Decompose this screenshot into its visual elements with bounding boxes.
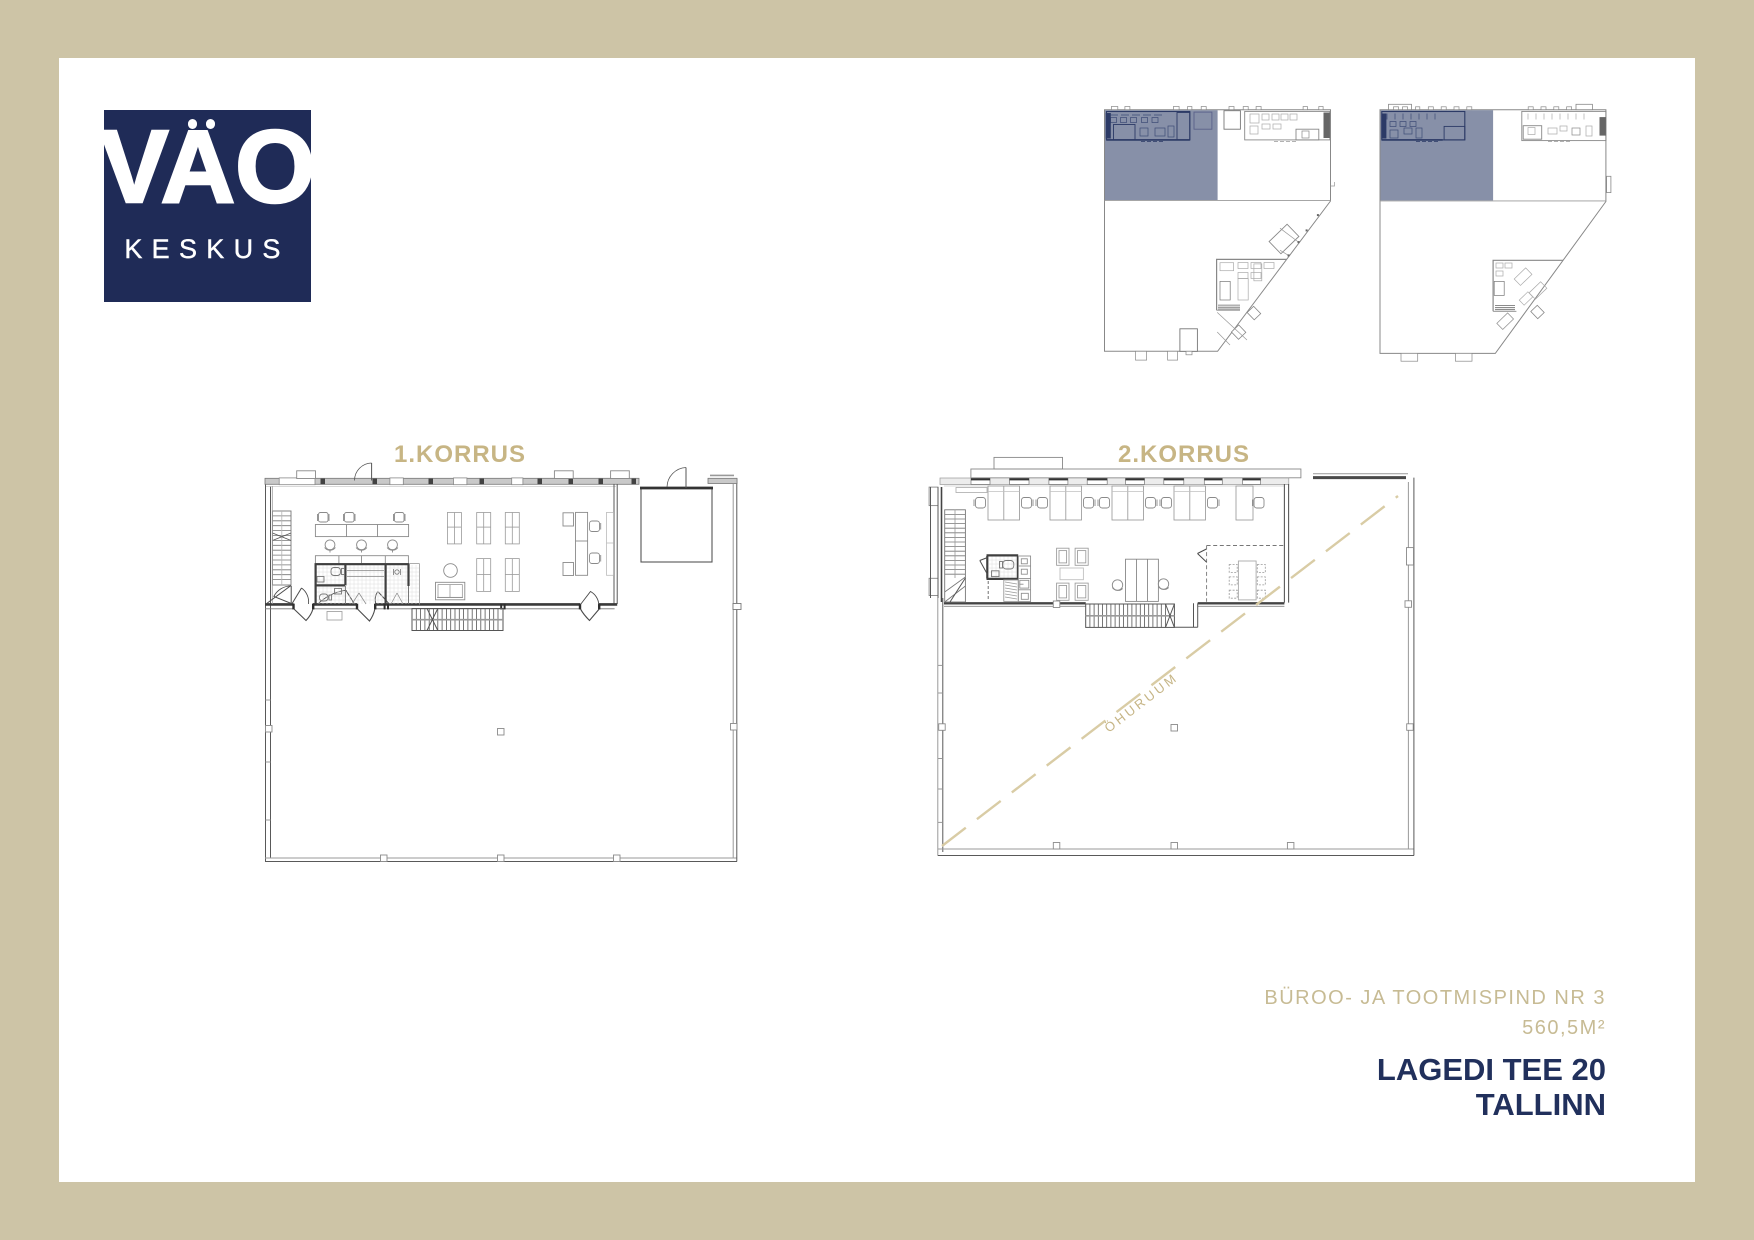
svg-text:ÖHURUUM: ÖHURUUM (1101, 669, 1181, 735)
